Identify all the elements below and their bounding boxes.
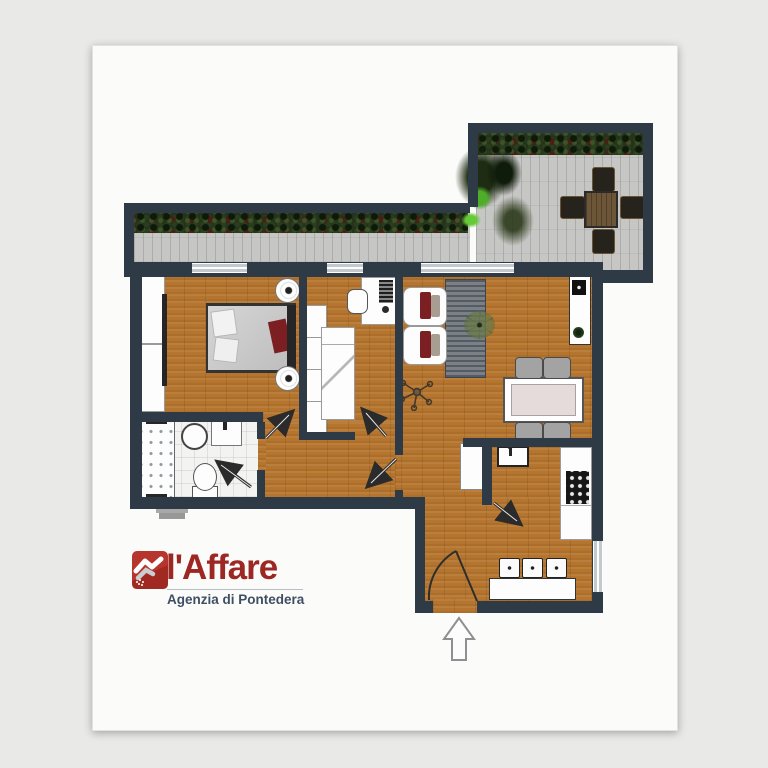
living-left-wall-lower bbox=[395, 490, 403, 498]
dining-chair-1 bbox=[515, 357, 543, 379]
bed-headboard bbox=[287, 305, 296, 371]
cabinet-plant bbox=[573, 327, 584, 338]
tall-cabinet bbox=[460, 443, 484, 490]
bathroom-door-threshold bbox=[257, 439, 266, 470]
kitchen-window bbox=[593, 541, 603, 592]
brand-subtitle: Agenzia di Pontedera bbox=[167, 592, 367, 607]
bathroom-right-wall-lower bbox=[257, 470, 265, 497]
bar-stool-1 bbox=[499, 558, 520, 578]
cooktop bbox=[566, 471, 589, 504]
living-window bbox=[421, 263, 467, 273]
terrace-plant-tuft bbox=[461, 212, 481, 228]
dining-chair-2 bbox=[543, 357, 571, 379]
round-washbasin bbox=[181, 423, 208, 450]
outdoor-chair-east bbox=[620, 196, 645, 219]
desk-books bbox=[379, 280, 393, 303]
bedroom-bottom-wall bbox=[130, 412, 263, 422]
toilet-bowl bbox=[193, 463, 217, 491]
desk-lamp bbox=[382, 306, 389, 313]
bedroom-window bbox=[192, 263, 247, 273]
dining-table-top bbox=[511, 384, 576, 416]
wardrobe-sliding-door bbox=[162, 294, 167, 386]
breakfast-bar bbox=[489, 578, 576, 600]
tv-screen bbox=[572, 280, 586, 295]
terrace-top-wall bbox=[468, 123, 653, 133]
kitchen-top-wall bbox=[463, 438, 593, 447]
terrace-left-wall bbox=[468, 123, 478, 207]
potted-plant-top-view bbox=[464, 311, 495, 339]
desk-chair bbox=[347, 289, 368, 314]
exterior-step-3 bbox=[159, 513, 185, 519]
bar-stool-2 bbox=[522, 558, 543, 578]
bathroom-right-wall-upper bbox=[257, 422, 265, 439]
bed-sheet-fold-1 bbox=[210, 308, 237, 337]
bed-sheet-fold-2 bbox=[213, 337, 240, 364]
brand-divider bbox=[167, 589, 303, 590]
kitchen-sink bbox=[497, 446, 529, 467]
single-bed bbox=[321, 327, 355, 420]
terrace-door bbox=[467, 263, 514, 273]
second-bedroom-window bbox=[327, 263, 363, 273]
front-door-gap bbox=[433, 599, 477, 613]
terrace-plant-branch bbox=[492, 196, 534, 246]
lounge-chair-2-cushion bbox=[420, 331, 431, 358]
second-bedroom-bottom-wall bbox=[306, 432, 355, 440]
brand-name: l'Affare bbox=[166, 549, 386, 587]
balcony-hedge bbox=[134, 211, 468, 233]
nightstand-lamp-top bbox=[275, 278, 300, 303]
outdoor-chair-west bbox=[560, 196, 585, 219]
terrace-plant-shadow bbox=[486, 150, 522, 196]
bar-stool-3 bbox=[546, 558, 567, 578]
nightstand-lamp-bottom bbox=[275, 366, 300, 391]
outdoor-chair-north bbox=[592, 167, 615, 192]
outdoor-chair-south bbox=[592, 229, 615, 254]
balcony-top-wall bbox=[124, 203, 470, 213]
lounge-chair-1-cushion bbox=[420, 292, 431, 319]
balcony-left-wall bbox=[124, 203, 134, 265]
kitchen-partition-wall bbox=[482, 447, 492, 505]
terrace-right-wall bbox=[643, 123, 653, 283]
living-left-wall-upper bbox=[395, 272, 403, 455]
lounge-chair-1-seat bbox=[431, 295, 440, 317]
bedroom-right-wall bbox=[299, 272, 307, 440]
outdoor-table bbox=[584, 191, 618, 228]
lounge-chair-2-seat bbox=[431, 334, 440, 356]
bottom-left-outer-wall bbox=[130, 497, 425, 509]
terrace-bottom-wall bbox=[600, 270, 653, 283]
floor-plan-canvas: l'Affare Agenzia di Pontedera bbox=[0, 0, 768, 768]
left-outer-wall bbox=[130, 262, 142, 509]
shower bbox=[140, 420, 175, 500]
bedroom-door-threshold bbox=[263, 412, 300, 422]
entrance-left-outer-wall bbox=[415, 497, 425, 613]
sink-faucet bbox=[509, 448, 512, 456]
